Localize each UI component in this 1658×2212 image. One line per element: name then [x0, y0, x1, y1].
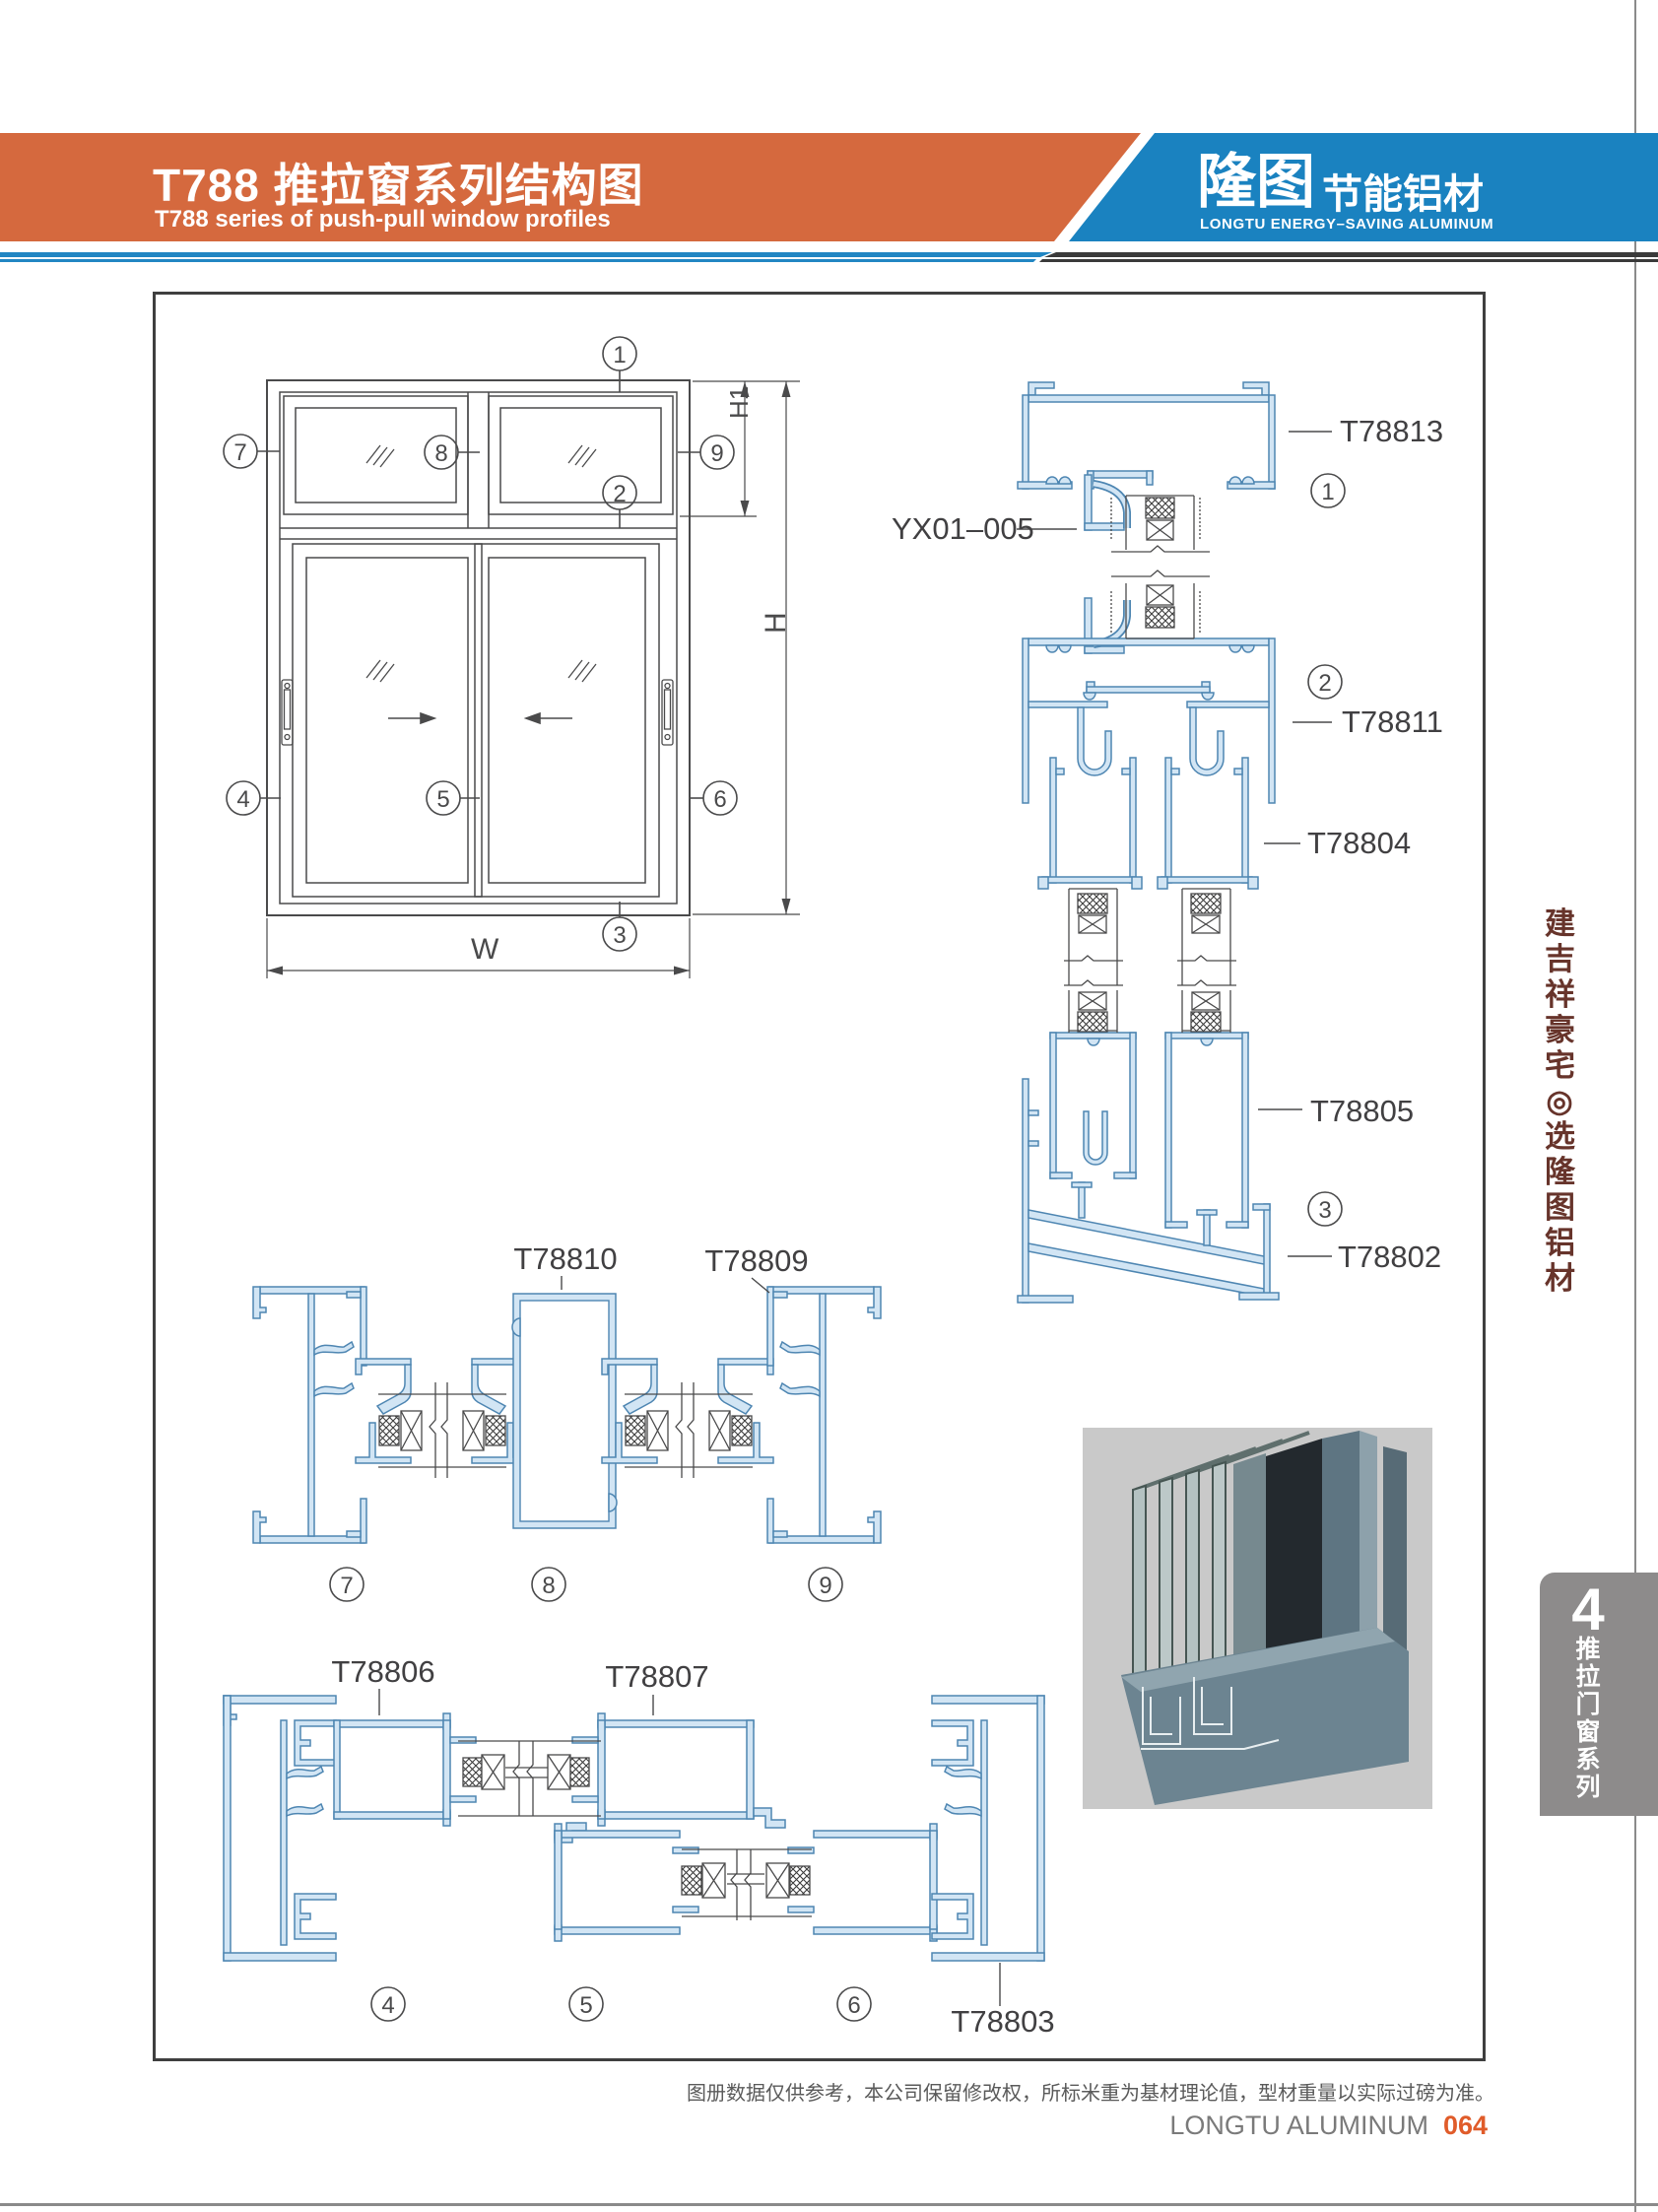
svg-text:4: 4: [381, 1992, 394, 2019]
svg-text:W: W: [471, 933, 499, 966]
svg-text:5: 5: [436, 786, 449, 813]
svg-text:3: 3: [613, 922, 626, 949]
svg-text:9: 9: [710, 440, 723, 467]
svg-text:3: 3: [1318, 1197, 1331, 1224]
svg-text:8: 8: [434, 440, 447, 467]
svg-text:2: 2: [613, 481, 626, 507]
svg-text:T78810: T78810: [513, 1241, 617, 1276]
svg-text:T78811: T78811: [1342, 704, 1443, 739]
svg-text:9: 9: [819, 1573, 831, 1599]
svg-text:4: 4: [236, 786, 249, 813]
svg-text:H1: H1: [724, 386, 754, 419]
svg-text:1: 1: [613, 342, 626, 369]
svg-text:6: 6: [847, 1992, 860, 2019]
svg-text:T78803: T78803: [951, 2004, 1054, 2039]
svg-text:T78807: T78807: [605, 1659, 708, 1694]
svg-text:2: 2: [1318, 670, 1331, 697]
svg-text:T78806: T78806: [331, 1654, 434, 1689]
svg-text:H: H: [760, 612, 792, 634]
svg-text:T78802: T78802: [1338, 1240, 1441, 1274]
svg-text:5: 5: [579, 1992, 592, 2019]
svg-text:T78813: T78813: [1340, 414, 1443, 448]
svg-text:6: 6: [713, 786, 726, 813]
svg-text:T78804: T78804: [1307, 826, 1411, 860]
svg-text:1: 1: [1321, 479, 1334, 505]
svg-text:7: 7: [340, 1573, 353, 1599]
svg-text:8: 8: [542, 1573, 555, 1599]
svg-text:T78805: T78805: [1310, 1094, 1414, 1128]
svg-text:7: 7: [233, 439, 246, 466]
svg-text:YX01–005: YX01–005: [892, 511, 1034, 546]
svg-text:T78809: T78809: [704, 1243, 808, 1278]
